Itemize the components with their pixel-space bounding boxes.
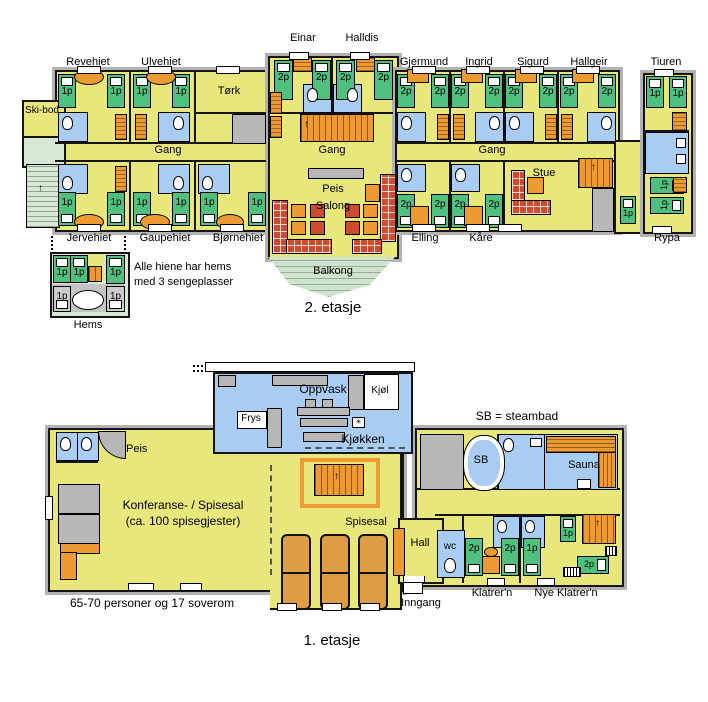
window [289, 52, 309, 60]
capacity-note: 65-70 personer og 17 soverom [70, 597, 234, 609]
table [72, 290, 104, 310]
room-label-kjol: Kjøl [371, 386, 388, 396]
wall [55, 160, 266, 162]
counter [218, 375, 236, 387]
room-label-balkong: Balkong [313, 266, 353, 277]
bed-1p: 1p [107, 74, 125, 108]
bed-1p: 1p [620, 196, 636, 224]
roof-strip [205, 362, 415, 372]
armchair [363, 221, 378, 235]
sink [676, 138, 686, 148]
window [466, 224, 490, 232]
window [45, 496, 53, 520]
chair [310, 221, 325, 235]
toilet [81, 437, 92, 451]
entrance-steps [403, 582, 423, 594]
bed-2p: 2p [539, 74, 557, 108]
wall [194, 70, 196, 142]
counter [303, 432, 345, 442]
entry-area [420, 434, 464, 490]
bed-1p: 1p [53, 286, 71, 312]
staircase [314, 464, 364, 496]
bed-1p: 1p [70, 255, 88, 283]
room-label-konferanse2: (ca. 100 spisegjester) [126, 515, 241, 527]
dining-table [320, 534, 350, 610]
toilet [509, 116, 520, 130]
floor-plan-canvas: Ski-bod ↑ 1p 1p 1p 1p 1p 1p 1p 1p 1p 1p [0, 0, 708, 702]
wardrobe [545, 114, 557, 140]
room-label-hallgeir: Hallgeir [570, 57, 607, 68]
wardrobe [115, 114, 127, 140]
room-label-gang: Gang [319, 145, 346, 156]
room-label-halldis: Halldis [345, 33, 378, 44]
bed-1p: 1p [107, 192, 125, 226]
room-label-oppvask: Oppvask [299, 383, 346, 395]
sauna-bench [598, 452, 616, 488]
sofa [380, 174, 396, 242]
wall [557, 70, 559, 142]
wall [129, 70, 131, 142]
wall [129, 160, 131, 230]
room-label-frys: Frys [241, 414, 260, 424]
bed-2p: 2p [485, 194, 503, 228]
window [412, 224, 436, 232]
window [322, 603, 342, 611]
room-label-gang: Gang [155, 145, 182, 156]
toilet [173, 116, 184, 130]
bed-1p: 1p [58, 74, 76, 108]
counter [267, 408, 282, 448]
toilet [401, 168, 412, 182]
storage-room [232, 114, 266, 144]
leader-dots [124, 236, 126, 250]
hems-note-line1: Alle hiene har hems [134, 262, 231, 273]
room-label-sauna: Sauna [568, 460, 600, 471]
bed-2p: 2p [501, 538, 519, 576]
sink [676, 154, 686, 164]
floor2-title: 2. etasje [305, 300, 362, 315]
hems-mini-stairs [88, 266, 102, 282]
room-label-konferanse1: Konferanse- / Spisesal [123, 499, 244, 511]
stairs-arrow-icon: ↑ [595, 519, 600, 529]
room-label-bjornehiet: Bjørnehiet [213, 233, 263, 244]
serving-counter [60, 552, 77, 580]
bed-1p: 1p [53, 255, 71, 283]
room-label-skibod: Ski-bod [24, 106, 60, 116]
bed-1p: 1p [650, 197, 684, 214]
room-label-klatrern: Klatrer'n [472, 588, 513, 599]
sauna-heater [577, 479, 591, 489]
wall [194, 160, 196, 230]
floor1-title: 1. etasje [304, 633, 361, 648]
vent-icon: ✳ [352, 417, 365, 428]
room-label-wc: wc [444, 542, 456, 552]
bed-1p: 1p [172, 192, 190, 226]
room-label-kaare: Kåre [469, 233, 492, 244]
window [277, 603, 297, 611]
toilet [347, 88, 358, 102]
chair [345, 221, 360, 235]
room-label-spisesal: Spisesal [345, 517, 387, 528]
armchair [363, 204, 378, 218]
window [77, 224, 101, 232]
window [350, 52, 370, 60]
room-label-hall: Hall [411, 538, 430, 549]
toilet [401, 116, 412, 130]
window [216, 66, 240, 74]
bed-2p: 2p [374, 60, 393, 100]
table [527, 177, 544, 194]
pillar [393, 528, 405, 576]
stairs-arrow-icon: ↑ [304, 120, 309, 130]
toilet [202, 176, 213, 190]
window [498, 224, 522, 232]
stairs-up-arrow-icon: ↑ [38, 184, 43, 194]
bed-1p: 1p [248, 192, 266, 226]
room-label-nye-klatrern: Nye Klatrer'n [534, 588, 597, 599]
wardrobe [453, 114, 465, 140]
counter-island [297, 407, 350, 416]
window [180, 583, 202, 591]
wardrobe [270, 92, 282, 114]
bed-2p: 2p [431, 194, 449, 228]
toilet [62, 116, 73, 130]
room-label-peis-f1: Peis [126, 444, 147, 455]
outdoor-stairs [26, 164, 60, 228]
room-label-sb: SB [474, 455, 489, 466]
wardrobe [561, 114, 573, 140]
dashed-partition [270, 465, 272, 575]
balcony [268, 257, 395, 297]
sauna-bench [546, 436, 616, 453]
staircase [300, 114, 374, 142]
toilet [525, 520, 535, 533]
room-label-sigurd: Sigurd [517, 57, 549, 68]
room-label-gjermund: Gjermund [400, 57, 448, 68]
counter [348, 375, 364, 410]
radiator [563, 567, 581, 577]
bed-1p: 1p [523, 538, 541, 576]
closet [58, 484, 100, 514]
room-label-stue: Stue [533, 168, 556, 179]
wall-block [592, 188, 614, 232]
bed-1p: 1p [106, 286, 125, 312]
desk [464, 206, 483, 226]
dresser [673, 177, 687, 193]
window [128, 583, 154, 591]
room-label-gang: Gang [479, 145, 506, 156]
leader-dots [51, 236, 53, 250]
window [487, 578, 505, 586]
dining-table [358, 534, 388, 610]
bed-2p: 2p [431, 74, 449, 108]
dresser [672, 112, 687, 131]
wardrobe [437, 114, 449, 140]
legend-steambad: SB = steambad [476, 410, 558, 422]
window [220, 224, 244, 232]
toilet [489, 116, 500, 130]
toilet [503, 438, 514, 452]
toilet [62, 176, 73, 190]
dining-table [281, 534, 311, 610]
room-label-tiuren: Tiuren [651, 57, 682, 68]
room-label-ingrid: Ingrid [465, 57, 493, 68]
wall [56, 461, 98, 463]
desk [410, 206, 429, 226]
room-label-ulvehiet: Ulvehiet [141, 57, 181, 68]
armchair [291, 204, 306, 218]
desk [482, 556, 500, 574]
bed-1p: 1p [560, 516, 576, 542]
room-label-salong: Salong [316, 201, 350, 212]
armchair [291, 221, 306, 235]
bed-2p: 2p [577, 556, 609, 574]
sink [530, 438, 542, 447]
stairs-arrow-icon: ↑ [334, 472, 339, 482]
room-label-peis: Peis [322, 184, 343, 195]
toilet [173, 176, 184, 190]
bed-1p: 1p [669, 76, 687, 108]
room-label-elling: Elling [412, 233, 439, 244]
window [654, 69, 674, 77]
sofa [352, 239, 382, 254]
bed-1p: 1p [646, 76, 664, 108]
room-label-rypa: Rypa [654, 233, 680, 244]
toilet [455, 168, 466, 182]
wardrobe [135, 114, 147, 140]
window [148, 224, 172, 232]
wardrobe [270, 116, 282, 138]
bed-2p: 2p [598, 74, 616, 108]
closet [58, 514, 100, 544]
stairs-arrow-icon: ↑ [591, 163, 596, 173]
sofa [511, 200, 551, 215]
window [537, 578, 555, 586]
room-label-gaupehiet: Gaupehiet [140, 233, 191, 244]
bed-2p: 2p [465, 538, 483, 576]
radiator [605, 546, 617, 556]
hems-note-line2: med 3 sengeplasser [134, 277, 233, 288]
counter-island [300, 418, 348, 427]
room-label-einar: Einar [290, 33, 316, 44]
toilet [497, 520, 507, 533]
room-label-revehiet: Revehiet [66, 57, 109, 68]
wall [503, 162, 505, 230]
armchair [365, 184, 380, 202]
bed-2p: 2p [485, 74, 503, 108]
bed-1p: 1p [106, 255, 125, 284]
label-inngang: Inngang [401, 598, 441, 609]
room-label-tork: Tørk [218, 86, 241, 97]
wardrobe [115, 166, 127, 192]
wall [395, 142, 616, 144]
dashed-boundary [305, 447, 405, 449]
room-label-hems: Hems [74, 320, 103, 331]
toilet [307, 88, 318, 102]
toilet [601, 116, 612, 130]
window [360, 603, 380, 611]
room-label-jervehiet: Jervehiet [67, 233, 112, 244]
toilet [60, 437, 71, 451]
room-label-kjokken: Kjøkken [341, 433, 384, 445]
sofa [286, 239, 332, 254]
toilet [444, 558, 456, 573]
fireplace-bench [308, 168, 364, 179]
